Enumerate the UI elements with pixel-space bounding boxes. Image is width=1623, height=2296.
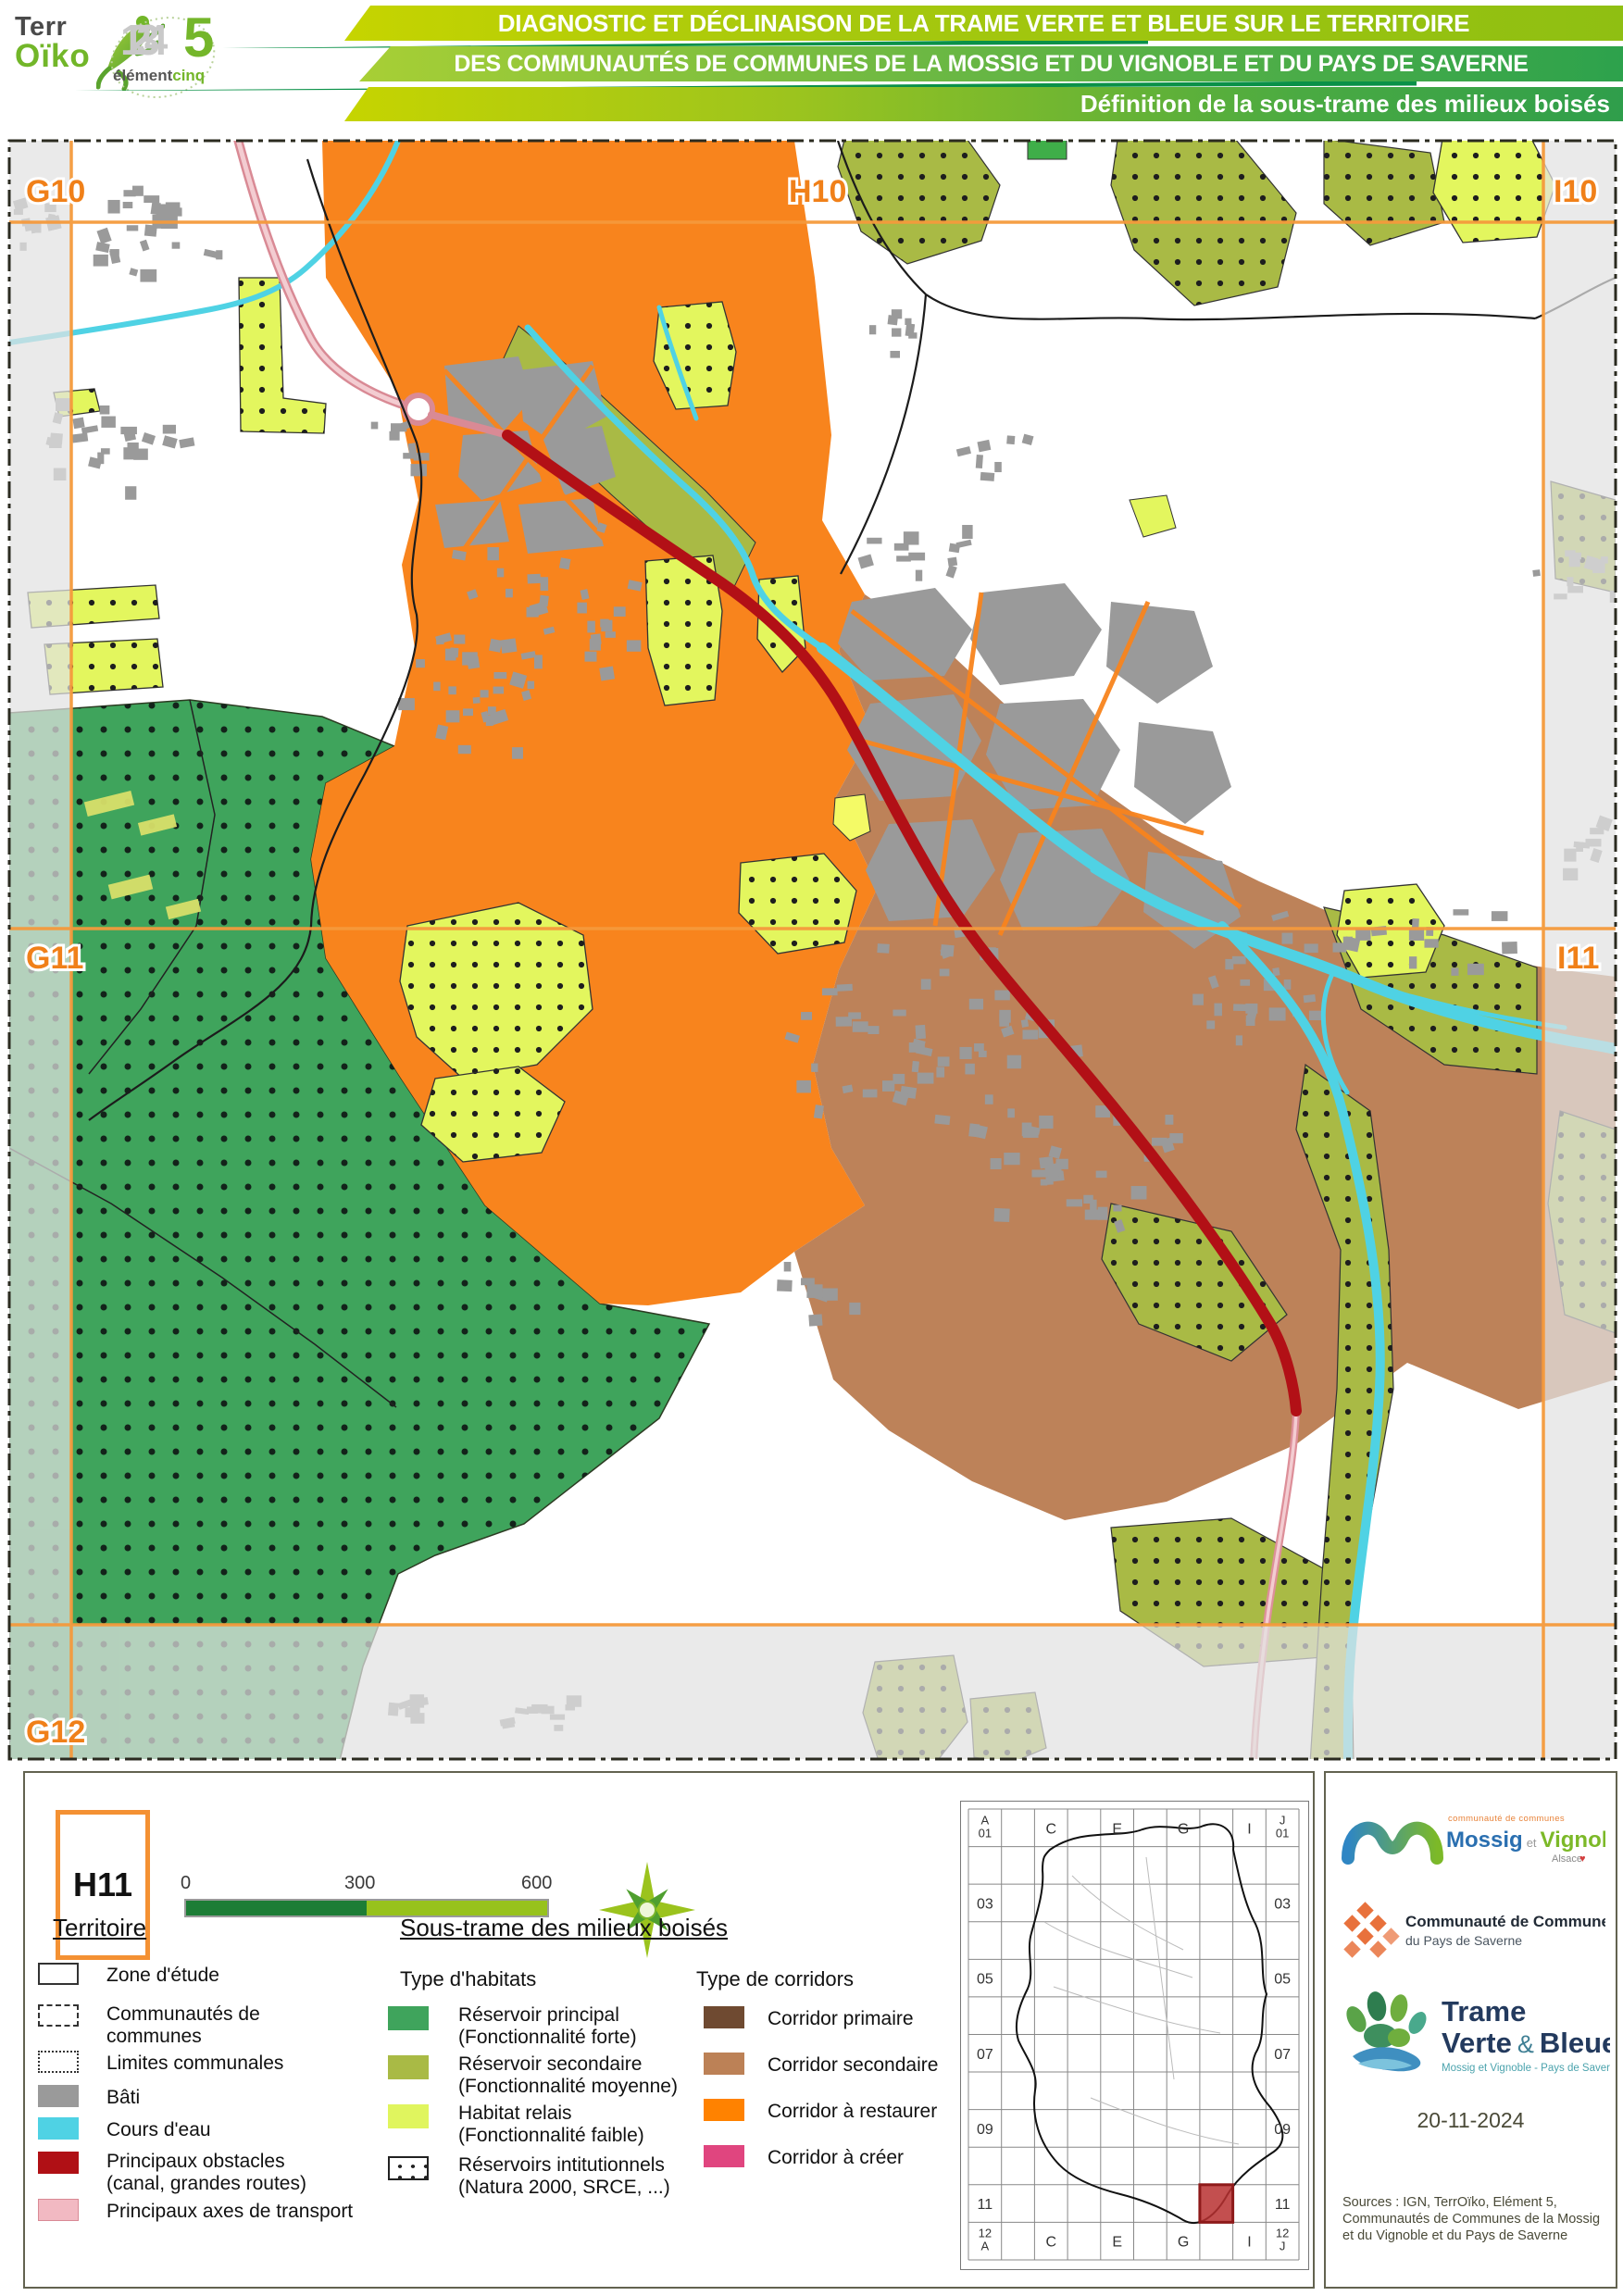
svg-text:E: E — [1112, 2235, 1122, 2251]
hab3-label: Habitat relais — [458, 2103, 572, 2124]
pays-saverne-logo: Communauté de Communes du Pays de Savern… — [1326, 1901, 1616, 1958]
svg-text:Verte&Bleue: Verte&Bleue — [1442, 2027, 1610, 2059]
minimap-grid — [968, 1809, 1299, 2260]
limites-label: Limites communales — [106, 2053, 283, 2075]
reservoirs-institutionnels-swatch — [388, 2156, 429, 2180]
communautes-label: Communautés de communes — [106, 2003, 301, 2048]
svg-text:I: I — [1247, 2235, 1251, 2251]
minimap-commune-lines — [1044, 1857, 1239, 2144]
svg-text:A01: A01 — [979, 1813, 992, 1840]
svg-text:communauté de communes: communauté de communes — [1448, 1814, 1565, 1824]
svg-text:12A: 12A — [979, 2227, 992, 2253]
svg-text:12J: 12J — [1276, 2227, 1289, 2253]
scale-0: 0 — [181, 1873, 191, 1894]
obstacles-label: Principaux obstacles (canal, grandes rou… — [106, 2151, 329, 2195]
corridor-primaire-label: Corridor primaire — [768, 2008, 914, 2030]
overview-minimap: A01CEGIJ010303050507070909111112ACEGI12J — [960, 1801, 1309, 2270]
grid-label-h10: H10 — [789, 174, 846, 209]
svg-text:07: 07 — [977, 2047, 993, 2063]
hab2-sub: (Fonctionnalité moyenne) — [458, 2076, 678, 2097]
hab4-label: Réservoirs intitutionnels — [458, 2154, 665, 2176]
cours-eau-label: Cours d'eau — [106, 2119, 211, 2141]
legend-panel: H11 0 300 600 m Territoire Zone d'étude … — [0, 1771, 1623, 2296]
obstacles-swatch — [38, 2152, 79, 2174]
limites-swatch — [38, 2051, 79, 2073]
svg-text:du Pays de Saverne: du Pays de Saverne — [1405, 1933, 1522, 1948]
small-green-patch — [1028, 130, 1067, 159]
communautes-swatch — [38, 2004, 79, 2027]
svg-text:Alsace: Alsace — [1552, 1853, 1582, 1865]
grid-label-g12: G12 — [26, 1715, 85, 1750]
sources-note: Sources : IGN, TerrOïko, Elément 5, Comm… — [1342, 2194, 1604, 2244]
map-sheet: Terr Oïko 1234 5 élémentcinq DIAGNOSTIC … — [0, 0, 1623, 2296]
minimap-current-tile — [1200, 2185, 1233, 2223]
leaf-paw-icon — [1342, 1990, 1429, 2072]
hab2-label: Réservoir secondaire — [458, 2053, 642, 2075]
reservoir-principal-swatch — [388, 2006, 429, 2030]
compass-rose-icon — [592, 1854, 703, 1965]
habitats-title: Type d'habitats — [400, 1967, 536, 1991]
corridor-secondaire-label: Corridor secondaire — [768, 2054, 938, 2077]
corridor-creer-swatch — [704, 2145, 744, 2167]
corridor-creer-label: Corridor à créer — [768, 2147, 904, 2169]
axes-swatch — [38, 2199, 79, 2221]
svg-text:05: 05 — [1274, 1972, 1291, 1988]
zone-etude-swatch — [38, 1963, 79, 1985]
bati-label: Bâti — [106, 2087, 140, 2109]
corridor-restaurer-swatch — [704, 2099, 744, 2121]
svg-text:E: E — [1112, 1821, 1122, 1837]
svg-text:11: 11 — [1275, 2197, 1291, 2213]
svg-text:G: G — [1178, 1821, 1189, 1837]
corridor-primaire-swatch — [704, 2006, 744, 2028]
svg-text:I: I — [1247, 1821, 1251, 1837]
bati-swatch — [38, 2085, 79, 2107]
soustrame-heading: Sous-trame des milieux boisés — [400, 1914, 728, 1942]
svg-text:11: 11 — [978, 2197, 993, 2213]
svg-text:Communauté de Communes: Communauté de Communes — [1405, 1913, 1605, 1930]
axes-label: Principaux axes de transport — [106, 2201, 353, 2223]
credits-box: communauté de communes MossigetVignoble … — [1324, 1771, 1617, 2289]
habitat-relais-swatch — [388, 2104, 429, 2128]
corridor-secondaire-swatch — [704, 2053, 744, 2075]
territoire-heading: Territoire — [53, 1914, 146, 1942]
hab3-sub: (Fonctionnalité faible) — [458, 2125, 644, 2146]
svg-text:Mossig et Vignoble - Pays de S: Mossig et Vignoble - Pays de Saverne — [1442, 2063, 1610, 2074]
svg-text:09: 09 — [977, 2122, 993, 2138]
svg-text:05: 05 — [977, 1972, 993, 1988]
legend-main-box: H11 0 300 600 m Territoire Zone d'étude … — [23, 1771, 1315, 2289]
zone-etude-label: Zone d'étude — [106, 1965, 219, 1987]
trame-verte-bleue-logo: Trame Verte&Bleue Mossig et Vignoble - P… — [1326, 1984, 1616, 2086]
mossig-vignoble-logo: communauté de communes MossigetVignoble … — [1326, 1806, 1616, 1867]
grid-label-i10: I10 — [1554, 174, 1597, 209]
svg-text:G: G — [1178, 2235, 1189, 2251]
svg-text:MossigetVignoble: MossigetVignoble — [1446, 1828, 1605, 1853]
svg-text:03: 03 — [1274, 1896, 1291, 1912]
hab1-sub: (Fonctionnalité forte) — [458, 2027, 637, 2048]
svg-text:C: C — [1045, 2235, 1056, 2251]
small-green-patch — [1085, 109, 1113, 131]
scale-300: 300 — [344, 1873, 375, 1894]
corridors-title: Type de corridors — [696, 1967, 854, 1991]
hab4-sub: (Natura 2000, SRCE, ...) — [458, 2177, 670, 2198]
grid-label-g11: G11 — [26, 941, 83, 976]
reservoir-secondaire-swatch — [388, 2055, 429, 2079]
svg-text:J01: J01 — [1276, 1813, 1289, 1840]
svg-text:03: 03 — [977, 1896, 993, 1912]
hab1-label: Réservoir principal — [458, 2004, 619, 2026]
svg-text:♥: ♥ — [1579, 1853, 1586, 1865]
map-date: 20-11-2024 — [1326, 2108, 1616, 2133]
cours-eau-swatch — [38, 2117, 79, 2140]
svg-text:07: 07 — [1274, 2047, 1291, 2063]
grid-label-g10: G10 — [26, 174, 85, 209]
svg-text:09: 09 — [1274, 2122, 1291, 2138]
grid-label-i11: I11 — [1557, 941, 1599, 976]
svg-text:Trame: Trame — [1442, 1995, 1526, 2028]
corridor-restaurer-label: Corridor à restaurer — [768, 2101, 937, 2123]
svg-text:C: C — [1045, 1821, 1056, 1837]
